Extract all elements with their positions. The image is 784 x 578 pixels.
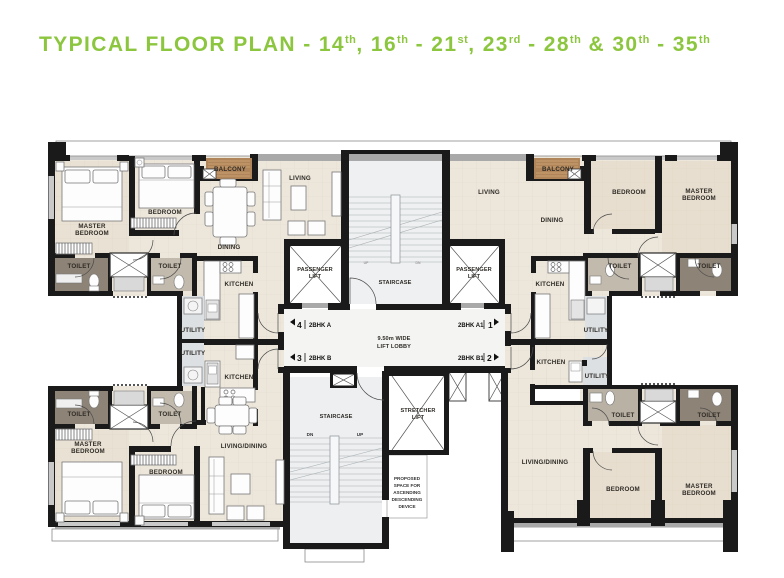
svg-text:DINING: DINING [541, 217, 564, 224]
svg-text:BEDROOM: BEDROOM [71, 448, 105, 455]
svg-text:TOILET: TOILET [158, 263, 181, 270]
svg-text:TOILET: TOILET [608, 263, 631, 270]
svg-text:2BHK B: 2BHK B [309, 356, 332, 362]
svg-text:TOILET: TOILET [611, 412, 634, 419]
svg-text:LIFT LOBBY: LIFT LOBBY [377, 344, 411, 350]
svg-text:LIVING: LIVING [289, 175, 311, 182]
svg-text:TOILET: TOILET [67, 411, 90, 418]
svg-text:PASSENGER: PASSENGER [456, 267, 492, 273]
svg-text:SPACE FOR: SPACE FOR [394, 483, 421, 488]
svg-text:STAIRCASE: STAIRCASE [320, 414, 353, 420]
svg-text:2BHK A1: 2BHK A1 [458, 323, 484, 329]
svg-text:MASTER: MASTER [685, 188, 713, 195]
svg-text:MASTER: MASTER [78, 223, 106, 230]
svg-text:TOILET: TOILET [697, 412, 720, 419]
svg-text:DN: DN [307, 432, 314, 437]
svg-text:KITCHEN: KITCHEN [225, 281, 254, 288]
svg-text:KITCHEN: KITCHEN [536, 281, 565, 288]
svg-text:DINING: DINING [218, 244, 241, 251]
svg-text:2BHK A: 2BHK A [309, 323, 332, 329]
svg-text:PASSENGER: PASSENGER [297, 267, 333, 273]
svg-text:LIVING: LIVING [478, 189, 500, 196]
svg-text:TOILET: TOILET [158, 411, 181, 418]
svg-text:DESCENDING: DESCENDING [392, 497, 423, 502]
svg-text:DN: DN [416, 261, 421, 265]
svg-text:4: 4 [297, 320, 302, 330]
svg-text:STAIRCASE: STAIRCASE [379, 280, 412, 286]
svg-text:LIFT: LIFT [309, 274, 322, 280]
svg-text:BEDROOM: BEDROOM [75, 230, 109, 237]
svg-text:LIVING/DINING: LIVING/DINING [522, 459, 569, 466]
svg-text:3: 3 [297, 353, 302, 363]
svg-text:2BHK B1: 2BHK B1 [458, 356, 484, 362]
svg-text:BEDROOM: BEDROOM [612, 189, 646, 196]
svg-text:UTILITY: UTILITY [181, 350, 206, 357]
svg-text:BEDROOM: BEDROOM [682, 195, 716, 202]
svg-text:DEVICE: DEVICE [398, 504, 415, 509]
svg-text:1: 1 [488, 320, 493, 330]
svg-text:BALCONY: BALCONY [214, 166, 247, 173]
svg-text:LIVING/DINING: LIVING/DINING [221, 443, 268, 450]
svg-text:STRETCHER: STRETCHER [400, 408, 435, 414]
svg-text:9.50m WIDE: 9.50m WIDE [377, 336, 410, 342]
svg-text:LIFT: LIFT [468, 274, 481, 280]
svg-text:UP: UP [357, 432, 363, 437]
svg-text:BEDROOM: BEDROOM [682, 490, 716, 497]
svg-text:TOILET: TOILET [697, 263, 720, 270]
svg-text:TOILET: TOILET [67, 263, 90, 270]
svg-text:BEDROOM: BEDROOM [148, 209, 182, 216]
svg-text:KITCHEN: KITCHEN [537, 359, 566, 366]
svg-text:UP: UP [364, 261, 369, 265]
svg-text:KITCHEN: KITCHEN [225, 374, 254, 381]
svg-text:MASTER: MASTER [685, 483, 713, 490]
svg-text:UTILITY: UTILITY [585, 373, 610, 380]
svg-text:2: 2 [487, 353, 492, 363]
svg-text:MASTER: MASTER [74, 441, 102, 448]
svg-text:LIFT: LIFT [412, 415, 425, 421]
svg-text:ASCENDING: ASCENDING [393, 490, 421, 495]
svg-text:PROPOSED: PROPOSED [394, 476, 421, 481]
svg-text:UTILITY: UTILITY [584, 327, 609, 334]
svg-text:UTILITY: UTILITY [181, 327, 206, 334]
svg-text:BEDROOM: BEDROOM [606, 486, 640, 493]
svg-text:BALCONY: BALCONY [542, 166, 575, 173]
svg-text:BEDROOM: BEDROOM [149, 469, 183, 476]
